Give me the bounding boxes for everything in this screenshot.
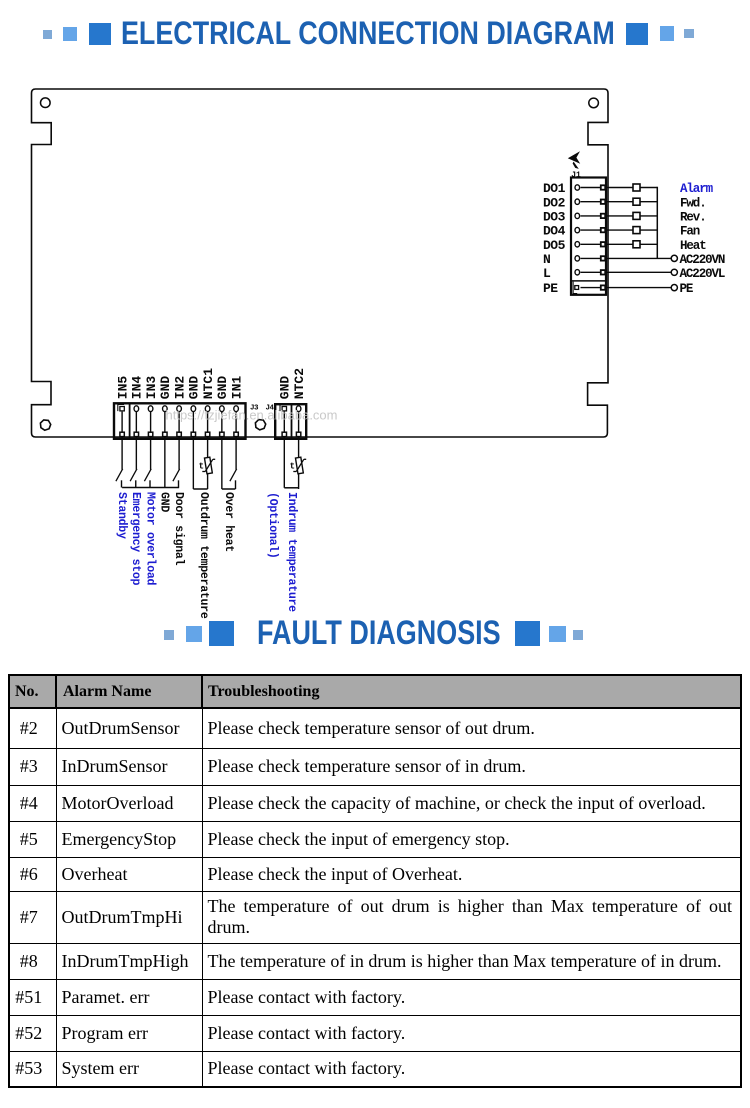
- svg-text:Standby: Standby: [115, 492, 128, 539]
- svg-text:GND: GND: [158, 376, 173, 400]
- svg-text:IN3: IN3: [144, 376, 159, 400]
- svg-text:AC220VL: AC220VL: [680, 267, 725, 281]
- svg-text:https://tzjiefan.en.alibaba.co: https://tzjiefan.en.alibaba.com: [166, 408, 338, 423]
- svg-text:IN4: IN4: [130, 376, 145, 400]
- svg-text:N: N: [543, 252, 550, 267]
- svg-text:GND: GND: [215, 376, 230, 400]
- svg-text:NTC1: NTC1: [201, 368, 216, 399]
- svg-text:t: t: [290, 462, 295, 472]
- svg-text:(Optional): (Optional): [266, 492, 279, 559]
- svg-text:DO1: DO1: [543, 181, 566, 196]
- svg-text:Fwd.: Fwd.: [680, 196, 706, 210]
- svg-text:GND: GND: [158, 492, 171, 512]
- svg-text:IN5: IN5: [115, 376, 130, 400]
- svg-text:GND: GND: [278, 376, 293, 400]
- svg-text:PE: PE: [543, 281, 558, 296]
- svg-text:Fan: Fan: [680, 225, 700, 239]
- svg-text:DO3: DO3: [543, 210, 566, 225]
- svg-text:L: L: [543, 266, 551, 281]
- svg-text:Rev.: Rev.: [680, 211, 706, 225]
- svg-text:Emergency stop: Emergency stop: [129, 492, 142, 586]
- svg-text:DO5: DO5: [543, 238, 566, 253]
- svg-text:Over heat: Over heat: [222, 492, 235, 552]
- svg-text:Door signal: Door signal: [172, 492, 185, 566]
- svg-text:IN2: IN2: [172, 376, 187, 400]
- svg-text:Alarm: Alarm: [680, 182, 714, 196]
- svg-text:t: t: [199, 462, 204, 472]
- svg-text:NTC2: NTC2: [292, 368, 307, 399]
- svg-text:IN1: IN1: [229, 376, 244, 400]
- svg-text:DO2: DO2: [543, 195, 566, 210]
- svg-text:Motor overload: Motor overload: [144, 492, 157, 586]
- svg-text:AC220VN: AC220VN: [680, 253, 725, 267]
- svg-text:PE: PE: [680, 282, 693, 296]
- svg-text:GND: GND: [187, 376, 202, 400]
- svg-text:DO4: DO4: [543, 224, 566, 239]
- svg-text:Indrum temperature: Indrum temperature: [285, 492, 298, 612]
- svg-text:Heat: Heat: [680, 239, 706, 253]
